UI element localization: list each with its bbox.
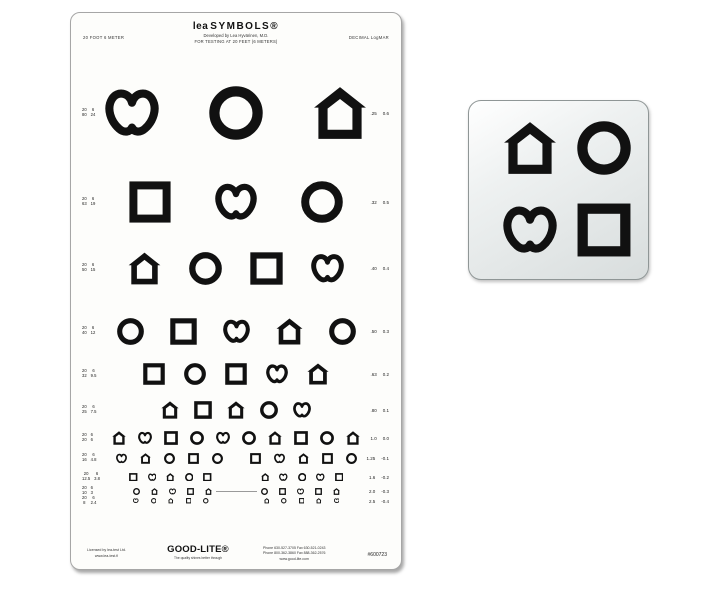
footer-licensed-block: Licensed by lea-test Ltd. www.lea-test.f… bbox=[87, 548, 126, 560]
acuity-row-logmar-0.6: 2080624.250.6 bbox=[71, 84, 401, 142]
meter-fraction: 612 bbox=[91, 326, 96, 335]
decimal-value: 1.25 bbox=[366, 456, 375, 461]
response-key-card bbox=[468, 100, 649, 280]
row-divider-line bbox=[216, 491, 257, 492]
house-symbol bbox=[307, 363, 329, 385]
distance-label: 2012.563.8 bbox=[82, 472, 100, 481]
circle-symbol bbox=[320, 431, 334, 445]
meter-fraction: 69.5 bbox=[91, 369, 97, 378]
heart-symbol bbox=[297, 488, 304, 495]
circle-symbol bbox=[164, 453, 175, 464]
optotype-group bbox=[128, 252, 344, 285]
acuity-label: .500.3 bbox=[370, 329, 389, 334]
lea-symbols-chart: leaSYMBOLS® Developed by Lea Hyvärinen, … bbox=[70, 12, 402, 570]
optotype-group bbox=[250, 453, 357, 464]
meter-fraction: 62.4 bbox=[91, 496, 97, 505]
logmar-value: 0.5 bbox=[383, 200, 389, 205]
meter-fraction: 615 bbox=[91, 263, 96, 272]
logmar-value: -0.2 bbox=[381, 475, 389, 480]
distance-label: 2050615 bbox=[82, 263, 95, 272]
meter-fraction: 63 bbox=[91, 486, 93, 495]
decimal-value: .40 bbox=[370, 266, 376, 271]
foot-fraction: 2020 bbox=[82, 433, 87, 442]
square-symbol bbox=[143, 363, 165, 385]
square-symbol bbox=[335, 473, 344, 482]
decimal-value: .50 bbox=[370, 329, 376, 334]
acuity-row-logmar-0.2: 203269.5.630.2 bbox=[71, 361, 401, 387]
distance-label: 201664.8 bbox=[82, 453, 97, 462]
circle-symbol bbox=[281, 498, 287, 504]
licensed-by-text: Licensed by lea-test Ltd. bbox=[87, 548, 126, 554]
decimal-value: 2.5 bbox=[369, 499, 375, 504]
house-symbol bbox=[168, 498, 174, 504]
meter-fraction: 624 bbox=[91, 108, 96, 117]
acuity-label: 2.0-0.3 bbox=[369, 489, 389, 494]
optotype-groups bbox=[133, 498, 339, 504]
decimal-value: 1.6 bbox=[369, 475, 375, 480]
acuity-row-logmar-0.0: 2020661.00.0 bbox=[71, 429, 401, 447]
square-symbol bbox=[577, 203, 631, 257]
logmar-value: -0.4 bbox=[381, 499, 389, 504]
square-symbol bbox=[299, 498, 305, 504]
foot-fraction: 208 bbox=[82, 496, 87, 505]
foot-value: 32 bbox=[82, 374, 87, 379]
heart-symbol bbox=[334, 498, 340, 504]
optotype-groups bbox=[143, 363, 329, 385]
circle-symbol bbox=[133, 488, 140, 495]
acuity-row-logmar-0.5: 2063619.320.5 bbox=[71, 179, 401, 225]
circle-symbol bbox=[209, 86, 263, 140]
meter-value: 15 bbox=[91, 268, 96, 273]
optotype-group bbox=[129, 473, 212, 482]
acuity-row-logmar-0.1: 202567.5.800.1 bbox=[71, 399, 401, 421]
square-symbol bbox=[250, 252, 283, 285]
meter-fraction: 63.8 bbox=[94, 472, 100, 481]
foot-fraction: 2032 bbox=[82, 369, 87, 378]
foot-fraction: 2080 bbox=[82, 108, 87, 117]
distance-label: 20862.4 bbox=[82, 496, 97, 505]
foot-value: 16 bbox=[82, 458, 87, 463]
circle-symbol bbox=[189, 252, 222, 285]
acuity-row-logmar--0.3: 2010632.0-0.3 bbox=[71, 486, 401, 497]
contact-phone-fax-2: Phone 800-362-3860 Fax 888-362-2576 bbox=[263, 551, 325, 556]
optotype-group bbox=[143, 363, 329, 385]
item-number: #600723 bbox=[368, 552, 387, 558]
meter-value: 6 bbox=[91, 438, 93, 443]
acuity-row-logmar--0.2: 2012.563.81.6-0.2 bbox=[71, 471, 401, 484]
meter-value: 7.5 bbox=[91, 410, 97, 415]
square-symbol bbox=[129, 473, 138, 482]
decimal-value: .32 bbox=[370, 200, 376, 205]
house-symbol bbox=[227, 401, 245, 419]
circle-symbol bbox=[346, 453, 357, 464]
optotype-group bbox=[261, 473, 344, 482]
logmar-value: 0.2 bbox=[383, 372, 389, 377]
logmar-value: 0.4 bbox=[383, 266, 389, 271]
distance-label: 2040612 bbox=[82, 326, 95, 335]
acuity-label: 1.00.0 bbox=[370, 436, 389, 441]
circle-symbol bbox=[151, 498, 157, 504]
decimal-value: 1.0 bbox=[370, 436, 376, 441]
acuity-row-logmar-0.3: 2040612.500.3 bbox=[71, 316, 401, 347]
optotype-group bbox=[116, 453, 223, 464]
square-symbol bbox=[225, 363, 247, 385]
meter-fraction: 64.8 bbox=[91, 453, 97, 462]
acuity-label: .250.6 bbox=[370, 111, 389, 116]
page: leaSYMBOLS® Developed by Lea Hyvärinen, … bbox=[0, 0, 717, 605]
decimal-value: .80 bbox=[370, 408, 376, 413]
foot-fraction: 2010 bbox=[82, 486, 87, 495]
circle-symbol bbox=[260, 401, 278, 419]
house-symbol bbox=[264, 498, 270, 504]
acuity-rows: 2080624.250.62063619.320.52050615.400.42… bbox=[71, 13, 401, 569]
foot-value: 63 bbox=[82, 202, 87, 207]
house-symbol bbox=[166, 473, 175, 482]
circle-symbol bbox=[261, 488, 268, 495]
optotype-group bbox=[112, 431, 360, 445]
house-symbol bbox=[140, 453, 151, 464]
house-symbol bbox=[112, 431, 126, 445]
heart-symbol bbox=[279, 473, 288, 482]
heart-symbol bbox=[169, 488, 176, 495]
house-symbol bbox=[346, 431, 360, 445]
lea-test-url: www.lea-test.fi bbox=[87, 554, 126, 560]
square-symbol bbox=[188, 453, 199, 464]
acuity-label: 1.25-0.1 bbox=[366, 456, 389, 461]
optotype-group bbox=[264, 498, 340, 504]
circle-symbol bbox=[298, 473, 307, 482]
optotype-group bbox=[133, 498, 209, 504]
circle-symbol bbox=[203, 498, 209, 504]
circle-symbol bbox=[184, 363, 206, 385]
optotype-groups bbox=[161, 401, 311, 419]
circle-symbol bbox=[301, 181, 343, 223]
foot-fraction: 2050 bbox=[82, 263, 87, 272]
acuity-row-logmar-0.4: 2050615.400.4 bbox=[71, 250, 401, 287]
square-symbol bbox=[203, 473, 212, 482]
meter-value: 3.8 bbox=[94, 477, 100, 482]
square-symbol bbox=[194, 401, 212, 419]
square-symbol bbox=[315, 488, 322, 495]
optotype-group bbox=[105, 86, 367, 140]
footer-brand-block: GOOD-LITE® The quality shines better thr… bbox=[143, 544, 253, 560]
optotype-groups bbox=[112, 431, 360, 445]
footer-contact-block: Phone 630-527-3705 Fax 630-521-0243 Phon… bbox=[263, 546, 325, 562]
square-symbol bbox=[294, 431, 308, 445]
house-symbol bbox=[261, 473, 270, 482]
meter-value: 2.4 bbox=[91, 501, 97, 506]
optotype-group bbox=[133, 488, 212, 495]
key-card-symbol-grid bbox=[503, 121, 631, 257]
house-symbol bbox=[128, 252, 161, 285]
optotype-groups bbox=[128, 252, 344, 285]
foot-fraction: 2040 bbox=[82, 326, 87, 335]
house-symbol bbox=[313, 86, 367, 140]
house-symbol bbox=[205, 488, 212, 495]
distance-label: 2063619 bbox=[82, 197, 95, 206]
heart-symbol bbox=[216, 431, 230, 445]
logmar-value: 0.3 bbox=[383, 329, 389, 334]
good-lite-logo: GOOD-LITE® bbox=[143, 544, 253, 555]
logmar-value: 0.6 bbox=[383, 111, 389, 116]
circle-symbol bbox=[329, 318, 356, 345]
meter-value: 4.8 bbox=[91, 458, 97, 463]
heart-symbol bbox=[223, 318, 250, 345]
acuity-row-logmar--0.4: 20862.42.5-0.4 bbox=[71, 496, 401, 506]
decimal-value: .25 bbox=[370, 111, 376, 116]
good-lite-url: www.good-lite.com bbox=[263, 557, 325, 562]
optotype-groups bbox=[116, 453, 357, 464]
heart-symbol bbox=[311, 252, 344, 285]
foot-value: 8 bbox=[83, 501, 85, 506]
distance-label: 201063 bbox=[82, 486, 93, 495]
heart-symbol bbox=[274, 453, 285, 464]
meter-fraction: 66 bbox=[91, 433, 93, 442]
foot-value: 40 bbox=[82, 331, 87, 336]
optotype-group bbox=[129, 181, 343, 223]
square-symbol bbox=[129, 181, 171, 223]
square-symbol bbox=[187, 488, 194, 495]
optotype-groups bbox=[133, 488, 340, 495]
house-symbol bbox=[151, 488, 158, 495]
heart-symbol bbox=[503, 203, 557, 257]
foot-value: 25 bbox=[82, 410, 87, 415]
heart-symbol bbox=[116, 453, 127, 464]
acuity-label: .630.2 bbox=[370, 372, 389, 377]
house-symbol bbox=[316, 498, 322, 504]
foot-fraction: 2063 bbox=[82, 197, 87, 206]
distance-label: 202567.5 bbox=[82, 405, 97, 414]
logmar-value: -0.3 bbox=[381, 489, 389, 494]
decimal-value: .63 bbox=[370, 372, 376, 377]
heart-symbol bbox=[215, 181, 257, 223]
house-symbol bbox=[503, 121, 557, 175]
acuity-label: 2.5-0.4 bbox=[369, 499, 389, 504]
circle-symbol bbox=[212, 453, 223, 464]
meter-fraction: 619 bbox=[91, 197, 96, 206]
square-symbol bbox=[250, 453, 261, 464]
heart-symbol bbox=[316, 473, 325, 482]
distance-label: 202066 bbox=[82, 433, 93, 442]
heart-symbol bbox=[138, 431, 152, 445]
heart-symbol bbox=[293, 401, 311, 419]
circle-symbol bbox=[242, 431, 256, 445]
logmar-value: 0.1 bbox=[383, 408, 389, 413]
good-lite-tagline: The quality shines better through bbox=[143, 556, 253, 560]
meter-fraction: 67.5 bbox=[91, 405, 97, 414]
circle-symbol bbox=[190, 431, 204, 445]
acuity-label: 1.6-0.2 bbox=[369, 475, 389, 480]
optotype-groups bbox=[129, 473, 343, 482]
meter-value: 19 bbox=[91, 202, 96, 207]
optotype-group bbox=[261, 488, 340, 495]
acuity-label: .800.1 bbox=[370, 408, 389, 413]
decimal-value: 2.0 bbox=[369, 489, 375, 494]
house-symbol bbox=[298, 453, 309, 464]
foot-value: 20 bbox=[82, 438, 87, 443]
square-symbol bbox=[186, 498, 192, 504]
foot-fraction: 2016 bbox=[82, 453, 87, 462]
meter-value: 12 bbox=[91, 331, 96, 336]
square-symbol bbox=[322, 453, 333, 464]
heart-symbol bbox=[148, 473, 157, 482]
logmar-value: 0.0 bbox=[383, 436, 389, 441]
optotype-groups bbox=[129, 181, 343, 223]
distance-label: 2080624 bbox=[82, 108, 95, 117]
square-symbol bbox=[164, 431, 178, 445]
house-symbol bbox=[161, 401, 179, 419]
acuity-label: .320.5 bbox=[370, 200, 389, 205]
acuity-row-logmar--0.1: 201664.81.25-0.1 bbox=[71, 451, 401, 466]
square-symbol bbox=[170, 318, 197, 345]
heart-symbol bbox=[266, 363, 288, 385]
meter-value: 24 bbox=[91, 113, 96, 118]
house-symbol bbox=[268, 431, 282, 445]
foot-value: 12.5 bbox=[82, 477, 90, 482]
circle-symbol bbox=[117, 318, 144, 345]
distance-label: 203269.5 bbox=[82, 369, 97, 378]
meter-value: 9.5 bbox=[91, 374, 97, 379]
circle-symbol bbox=[577, 121, 631, 175]
house-symbol bbox=[276, 318, 303, 345]
logmar-value: -0.1 bbox=[381, 456, 389, 461]
optotype-groups bbox=[117, 318, 356, 345]
foot-value: 80 bbox=[82, 113, 87, 118]
optotype-group bbox=[117, 318, 356, 345]
foot-fraction: 2025 bbox=[82, 405, 87, 414]
optotype-groups bbox=[105, 86, 367, 140]
acuity-label: .400.4 bbox=[370, 266, 389, 271]
foot-fraction: 2012.5 bbox=[82, 472, 90, 481]
heart-symbol bbox=[133, 498, 139, 504]
square-symbol bbox=[279, 488, 286, 495]
optotype-group bbox=[161, 401, 311, 419]
circle-symbol bbox=[185, 473, 194, 482]
heart-symbol bbox=[105, 86, 159, 140]
house-symbol bbox=[333, 488, 340, 495]
foot-value: 50 bbox=[82, 268, 87, 273]
